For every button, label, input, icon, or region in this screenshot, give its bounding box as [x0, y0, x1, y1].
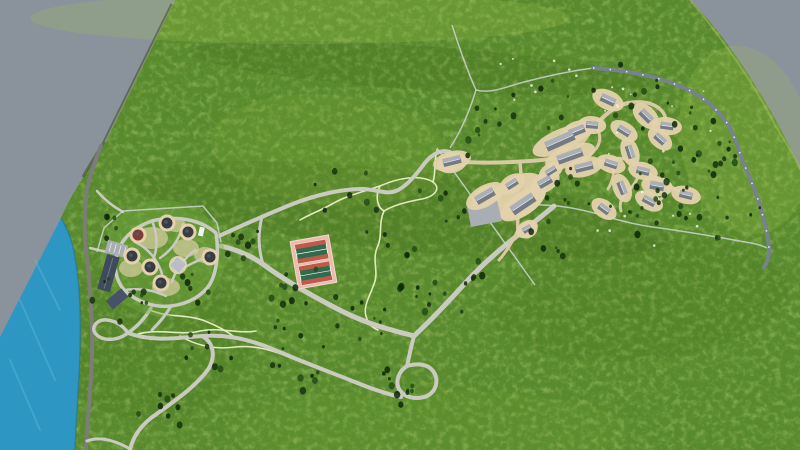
tree-dot: [641, 88, 647, 95]
hut-roof-highlight: [164, 220, 168, 224]
tree-dot: [511, 93, 515, 98]
tree-dot: [279, 283, 283, 288]
tree-dot: [634, 231, 640, 238]
tree-dot: [333, 294, 338, 300]
tree-dot: [733, 154, 737, 159]
tree-dot: [682, 189, 685, 192]
tree-dot: [749, 213, 752, 217]
tree-dot: [759, 206, 762, 209]
tree-dot: [551, 79, 554, 83]
hut-roof-highlight: [185, 229, 189, 233]
tree-dot: [280, 301, 286, 308]
tree-dot: [141, 301, 144, 304]
tree-dot: [432, 280, 437, 286]
tree-dot: [270, 362, 275, 368]
speck-dot: [696, 225, 699, 228]
tree-dot: [591, 88, 596, 93]
tree-dot: [386, 243, 390, 248]
tree-dot: [241, 255, 246, 261]
tree-dot: [104, 214, 107, 217]
tree-dot: [112, 216, 116, 221]
tree-dot: [195, 300, 200, 306]
tree-dot: [374, 207, 379, 213]
tree-dot: [298, 333, 303, 339]
tree-dot: [657, 200, 661, 205]
hut-roof-highlight: [207, 254, 211, 258]
tree-dot: [140, 293, 143, 297]
tree-dot: [691, 157, 696, 163]
tree-dot: [373, 317, 375, 320]
tree-dot: [460, 310, 463, 314]
tree-dot: [711, 118, 717, 125]
tree-dot: [639, 172, 642, 175]
tree-dot: [316, 370, 320, 374]
tree-dot: [383, 232, 387, 237]
speck-dot: [671, 105, 673, 107]
tree-dot: [418, 188, 422, 193]
speck-dot: [653, 244, 656, 247]
tree-dot: [545, 195, 550, 201]
tree-dot: [475, 127, 480, 134]
speck-dot: [608, 229, 611, 232]
speck-dot: [672, 215, 674, 217]
tree-dot: [380, 332, 383, 335]
tree-dot: [693, 125, 698, 131]
speck-dot: [608, 153, 610, 155]
tree-dot: [663, 178, 669, 186]
tree-dot: [136, 411, 141, 417]
tree-dot: [404, 252, 410, 259]
speck-dot: [534, 91, 537, 94]
tree-dot: [312, 377, 318, 384]
tree-dot: [166, 413, 171, 418]
tree-dot: [634, 183, 640, 190]
tree-dot: [711, 171, 717, 178]
tree-dot: [564, 198, 567, 202]
tree-dot: [465, 136, 471, 144]
tree-dot: [398, 283, 404, 290]
tree-dot: [655, 188, 659, 193]
tree-dot: [171, 393, 175, 398]
tree-dot: [568, 174, 573, 180]
tree-dot: [654, 220, 658, 225]
tree-dot: [276, 319, 279, 323]
tree-dot: [641, 126, 645, 131]
tree-dot: [429, 292, 432, 295]
tree-dot: [225, 251, 231, 258]
tree-dot: [555, 246, 558, 249]
tree-dot: [282, 347, 285, 350]
tree-dot: [292, 284, 298, 291]
tree-dot: [465, 153, 470, 159]
tree-dot: [717, 196, 720, 199]
tree-dot: [672, 160, 675, 164]
tree-dot: [314, 183, 317, 187]
speck-dot: [604, 110, 606, 112]
speck-dot: [622, 88, 625, 91]
speck-dot: [703, 90, 705, 92]
speck-dot: [553, 60, 556, 63]
tennis-courts: [290, 235, 337, 289]
tree-dot: [117, 318, 122, 325]
tree-dot: [175, 404, 180, 410]
tree-dot: [238, 234, 244, 241]
tree-dot: [708, 170, 711, 173]
tree-dot: [475, 258, 481, 265]
tree-dot: [655, 84, 659, 89]
tree-dot: [103, 280, 106, 283]
tree-dot: [177, 421, 183, 428]
speck-dot: [662, 150, 665, 153]
tree-dot: [494, 107, 497, 110]
tree-dot: [547, 126, 551, 131]
tree-dot: [205, 344, 210, 350]
tree-dot: [479, 272, 485, 280]
house-building: [586, 121, 599, 129]
tree-dot: [541, 245, 547, 252]
tree-dot: [415, 295, 418, 298]
tree-dot: [389, 382, 395, 389]
tree-dot: [462, 208, 467, 214]
tree-dot: [648, 158, 653, 164]
tree-dot: [696, 154, 699, 157]
tree-dot: [422, 308, 428, 316]
tree-dot: [114, 226, 118, 231]
tree-dot: [443, 190, 447, 195]
tree-dot: [640, 206, 643, 210]
tree-dot: [567, 95, 570, 98]
speck-dot: [575, 74, 578, 77]
tree-dot: [443, 291, 447, 296]
tree-dot: [497, 121, 502, 126]
speck-dot: [512, 58, 514, 60]
tree-dot: [206, 289, 211, 295]
tree-dot: [464, 281, 468, 285]
tree-dot: [567, 201, 571, 205]
hut-roof-highlight: [129, 253, 133, 257]
tree-dot: [511, 112, 517, 119]
tree-dot: [678, 145, 683, 151]
tree-dot: [208, 331, 211, 334]
speck-dot: [623, 215, 626, 218]
hut-roof-highlight: [158, 280, 162, 284]
tree-dot: [569, 167, 572, 171]
tree-dot: [727, 147, 731, 152]
tree-dot: [406, 389, 409, 393]
tree-dot: [383, 308, 386, 312]
tree-dot: [158, 392, 162, 397]
tree-dot: [713, 161, 719, 168]
speck-dot: [499, 63, 501, 65]
tree-dot: [394, 391, 400, 399]
tree-dot: [379, 320, 382, 324]
speck-dot: [530, 84, 533, 87]
tree-dot: [559, 115, 564, 121]
speck-dot: [689, 213, 691, 215]
speck-dot: [513, 99, 515, 101]
tree-dot: [662, 192, 667, 198]
tree-dot: [677, 211, 682, 217]
tree-dot: [250, 238, 255, 244]
tree-dot: [588, 202, 591, 205]
tree-dot: [528, 228, 534, 235]
tree-dot: [269, 295, 275, 302]
tree-dot: [556, 249, 559, 253]
tree-dot: [715, 237, 718, 241]
tree-dot: [445, 220, 448, 223]
hut-roof-highlight: [135, 232, 139, 236]
tree-dot: [676, 171, 680, 176]
tree-dot: [274, 325, 277, 329]
tree-dot: [358, 337, 362, 341]
tree-dot: [322, 345, 325, 348]
tree-dot: [613, 112, 618, 118]
tree-dot: [667, 102, 669, 105]
tree-dot: [722, 156, 726, 161]
tree-dot: [538, 86, 543, 92]
tree-dot: [245, 242, 251, 249]
tree-dot: [729, 140, 731, 143]
tree-dot: [289, 297, 295, 304]
tree-dot: [364, 171, 368, 176]
tree-dot: [689, 111, 692, 114]
tree-dot: [158, 403, 164, 410]
tree-dot: [191, 273, 194, 276]
tree-dot: [332, 168, 338, 175]
tree-dot: [300, 387, 306, 395]
tree-dot: [484, 119, 488, 124]
tree-dot: [351, 306, 355, 311]
speck-dot: [568, 68, 571, 71]
tree-dot: [218, 365, 224, 372]
tree-dot: [427, 302, 431, 307]
speck-dot: [641, 191, 644, 194]
speck-dot: [616, 131, 618, 133]
tree-dot: [633, 92, 637, 97]
tree-dot: [229, 356, 233, 361]
speck-dot: [611, 86, 613, 88]
tree-dot: [471, 275, 476, 281]
tree-dot: [360, 300, 364, 304]
tree-dot: [410, 389, 414, 394]
tree-dot: [412, 246, 417, 252]
tree-dot: [283, 327, 286, 331]
tree-dot: [284, 272, 288, 276]
tree-dot: [410, 384, 414, 389]
tree-dot: [298, 374, 304, 381]
tree-dot: [684, 216, 688, 221]
tree-dot: [655, 79, 658, 82]
tree-dot: [310, 374, 314, 378]
tree-dot: [231, 233, 235, 238]
tree-dot: [732, 159, 738, 166]
tree-dot: [89, 297, 95, 304]
tree-dot: [382, 371, 386, 375]
terrain-viewport[interactable]: [0, 0, 800, 450]
tree-dot: [697, 214, 703, 221]
tree-dot: [132, 289, 136, 294]
speck-dot: [630, 93, 632, 95]
tree-dot: [575, 181, 580, 187]
tree-dot: [180, 273, 185, 279]
tree-dot: [672, 121, 678, 128]
speck-dot: [616, 104, 618, 106]
tree-dot: [636, 214, 639, 218]
tree-dot: [145, 301, 148, 305]
tree-dot: [128, 293, 132, 298]
tree-dot: [188, 286, 192, 291]
tree-dot: [184, 356, 188, 361]
tree-dot: [335, 323, 339, 328]
tree-dot: [718, 161, 723, 167]
tree-dot: [660, 172, 665, 178]
tree-dot: [717, 141, 721, 146]
tree-dot: [278, 364, 281, 368]
tree-dot: [609, 205, 612, 208]
tree-dot: [388, 377, 391, 381]
tree-dot: [546, 219, 551, 225]
tree-dot: [304, 301, 308, 305]
tree-dot: [554, 180, 560, 187]
speck-dot: [596, 229, 599, 232]
tree-dot: [164, 395, 170, 402]
tree-dot: [323, 208, 327, 213]
tree-dot: [457, 215, 460, 219]
tree-dot: [398, 401, 403, 407]
tree-dot: [478, 134, 481, 137]
tree-dot: [185, 279, 191, 286]
terrain-render-canvas: [0, 0, 800, 450]
speck-dot: [617, 106, 619, 108]
tree-dot: [236, 239, 241, 245]
tree-dot: [314, 267, 318, 272]
tree-dot: [416, 285, 420, 290]
tree-dot: [212, 363, 218, 370]
tree-dot: [628, 103, 634, 110]
tree-dot: [188, 332, 193, 338]
tree-dot: [628, 210, 631, 213]
tree-dot: [560, 253, 566, 260]
tree-dot: [256, 230, 259, 233]
tree-dot: [685, 185, 688, 189]
tree-dot: [364, 199, 370, 206]
tree-dot: [690, 106, 693, 109]
tree-dot: [190, 346, 193, 350]
tree-dot: [347, 192, 352, 198]
tree-dot: [365, 230, 368, 234]
hut-roof-highlight: [147, 264, 151, 268]
tree-dot: [107, 277, 110, 281]
tree-dot: [104, 235, 109, 241]
speck-dot: [709, 130, 711, 132]
tree-dot: [475, 105, 480, 111]
tree-dot: [678, 203, 683, 209]
tree-dot: [438, 195, 444, 202]
tree-dot: [725, 216, 728, 220]
tree-dot: [618, 62, 623, 68]
